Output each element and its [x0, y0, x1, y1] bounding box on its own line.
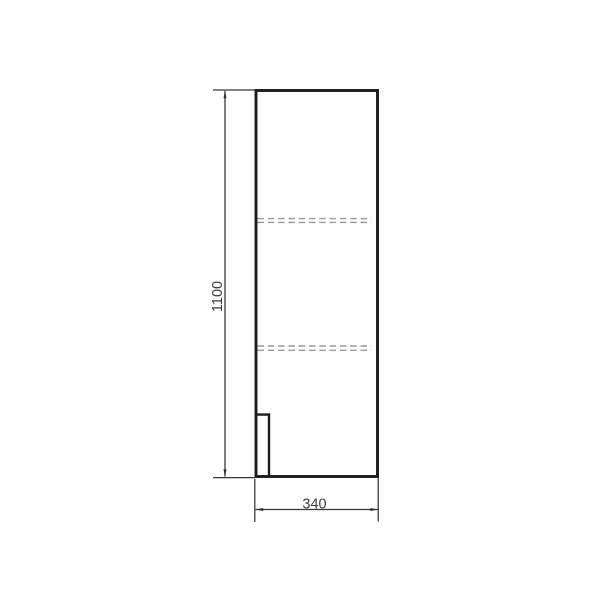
svg-text:340: 340 [302, 497, 326, 513]
svg-text:1100: 1100 [210, 281, 226, 312]
